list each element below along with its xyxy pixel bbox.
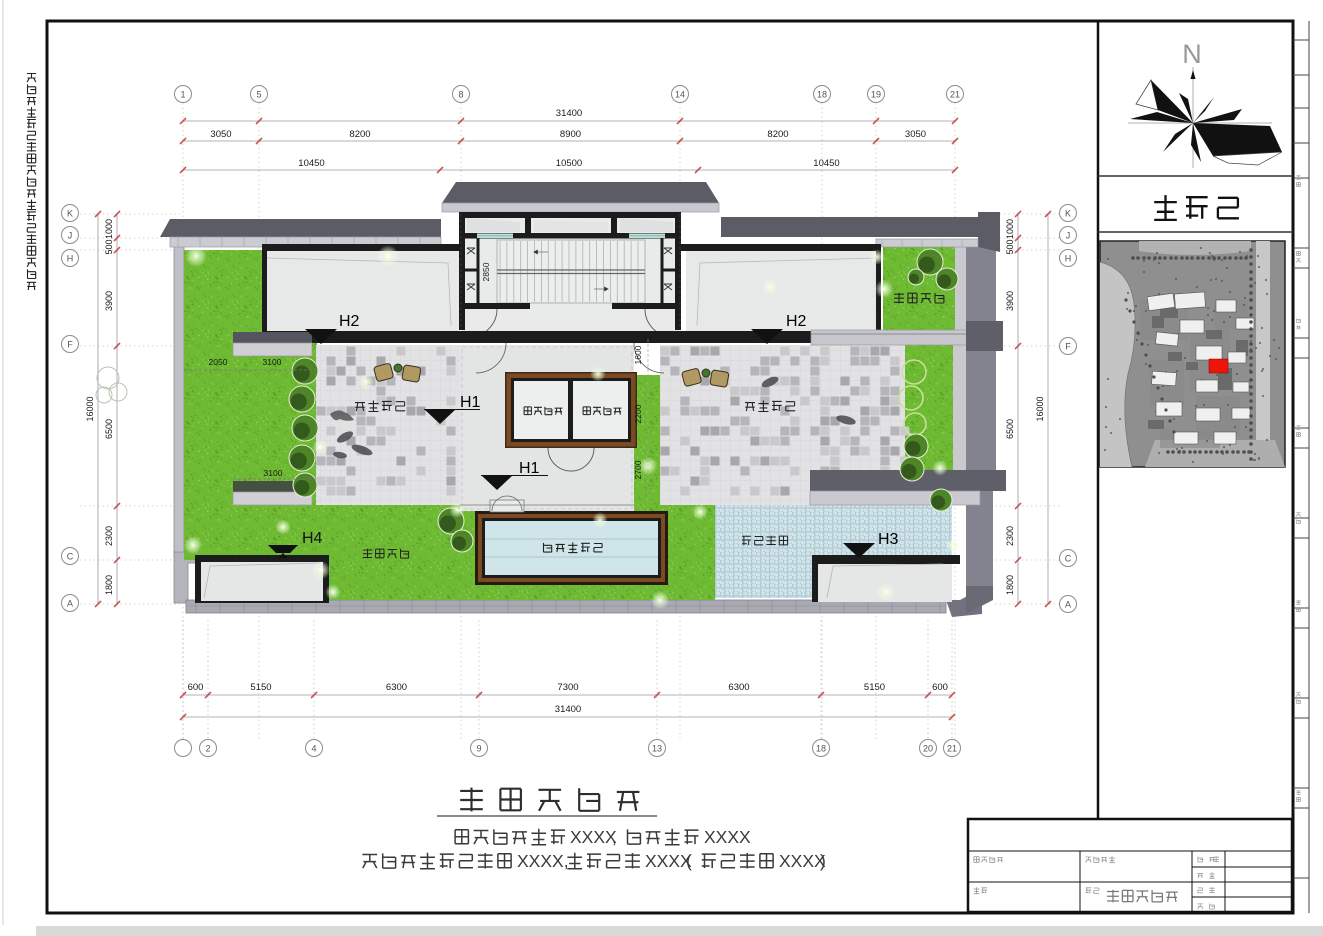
svg-text:F: F [67, 340, 73, 350]
svg-text:H2: H2 [339, 313, 360, 330]
svg-text:6300: 6300 [728, 682, 749, 693]
svg-text:3900: 3900 [104, 291, 114, 311]
svg-text:5: 5 [256, 90, 261, 100]
svg-text:K: K [1065, 209, 1071, 219]
svg-text:1000: 1000 [104, 219, 114, 239]
svg-text:6500: 6500 [104, 419, 114, 439]
svg-text:XXXX: XXXX [645, 851, 692, 871]
svg-text:J: J [1066, 231, 1071, 241]
svg-text:2300: 2300 [1005, 526, 1015, 546]
svg-text:21: 21 [947, 744, 957, 754]
svg-text:600: 600 [932, 682, 948, 693]
svg-text:5150: 5150 [864, 682, 885, 693]
svg-text:H: H [1065, 254, 1072, 264]
svg-text:K: K [67, 209, 73, 219]
svg-text:19: 19 [871, 90, 881, 100]
svg-text:1000: 1000 [1005, 219, 1015, 239]
svg-text:C: C [67, 552, 74, 562]
svg-text:2200: 2200 [633, 404, 643, 423]
svg-text:2700: 2700 [633, 460, 643, 479]
svg-text:14: 14 [675, 90, 685, 100]
svg-text:18: 18 [817, 90, 827, 100]
svg-text:10450: 10450 [298, 158, 324, 169]
svg-text:,: , [612, 827, 617, 847]
svg-text:7300: 7300 [557, 682, 578, 693]
svg-text:2850: 2850 [481, 262, 491, 281]
svg-text:N: N [1182, 39, 1202, 69]
svg-text:H2: H2 [786, 313, 807, 330]
svg-text:31400: 31400 [556, 108, 582, 119]
svg-text:2300: 2300 [104, 526, 114, 546]
svg-text:18: 18 [816, 744, 826, 754]
svg-text:J: J [68, 231, 73, 241]
svg-text:1: 1 [180, 90, 185, 100]
svg-text:10500: 10500 [556, 158, 582, 169]
svg-text:3900: 3900 [1005, 291, 1015, 311]
svg-text:H3: H3 [878, 531, 899, 548]
svg-text:H1: H1 [460, 394, 481, 411]
svg-text:500: 500 [1005, 239, 1015, 254]
svg-text:8200: 8200 [767, 129, 788, 140]
svg-text:3050: 3050 [210, 129, 231, 140]
svg-text:1600: 1600 [633, 345, 643, 364]
svg-text:500: 500 [104, 239, 114, 254]
svg-text:XXXX: XXXX [779, 851, 826, 871]
svg-text:XXXX,: XXXX, [517, 851, 569, 871]
svg-text:8200: 8200 [349, 129, 370, 140]
svg-text:1800: 1800 [104, 575, 114, 595]
svg-text:1800: 1800 [1005, 575, 1015, 595]
svg-text:2: 2 [205, 744, 210, 754]
svg-text:16000: 16000 [1035, 396, 1045, 421]
svg-text:10450: 10450 [813, 158, 839, 169]
svg-text:A: A [1065, 600, 1071, 610]
svg-text:XXXX: XXXX [570, 827, 617, 847]
svg-text:9: 9 [476, 744, 481, 754]
svg-text:600: 600 [188, 682, 204, 693]
svg-text:4: 4 [311, 744, 316, 754]
svg-text:13: 13 [652, 744, 662, 754]
svg-text:6500: 6500 [1005, 419, 1015, 439]
svg-text:6300: 6300 [386, 682, 407, 693]
svg-text:2050: 2050 [209, 357, 228, 367]
svg-text:31400: 31400 [555, 704, 581, 715]
svg-text:C: C [1065, 554, 1072, 564]
svg-text:3050: 3050 [905, 129, 926, 140]
svg-text:16000: 16000 [85, 396, 95, 421]
svg-text:F: F [1065, 342, 1071, 352]
svg-text:3100: 3100 [264, 468, 283, 478]
svg-text:): ) [820, 851, 826, 871]
svg-text:H4: H4 [302, 530, 323, 547]
svg-text:21: 21 [950, 90, 960, 100]
svg-text:8900: 8900 [560, 129, 581, 140]
svg-text:H: H [67, 254, 74, 264]
svg-text:3100: 3100 [263, 357, 282, 367]
svg-text:8: 8 [458, 90, 463, 100]
svg-text:20: 20 [923, 744, 933, 754]
svg-text:(: ( [686, 851, 692, 871]
svg-text:A: A [67, 599, 73, 609]
svg-text:XXXX: XXXX [704, 827, 751, 847]
svg-text:H1: H1 [519, 460, 540, 477]
svg-text:5150: 5150 [250, 682, 271, 693]
